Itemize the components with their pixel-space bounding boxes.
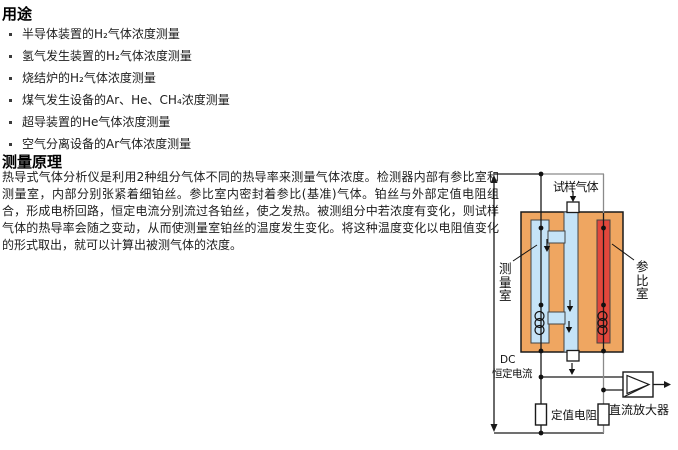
constant-current-label: 恒定电流 (492, 366, 532, 381)
measurement-channel (531, 220, 549, 343)
lower-gas-passage (548, 312, 565, 324)
fixed-resistor-reference (598, 404, 609, 425)
dc-label: DC (500, 354, 515, 366)
schematic-drawing (0, 0, 678, 450)
upper-gas-passage (548, 231, 565, 243)
reference-chamber-label: 参比室 (636, 260, 650, 301)
sample-gas-label: 试样气体 (553, 178, 598, 195)
detector-schematic: 试样气体 测量室 参比室 DC 恒定电流 定值电阻 直流放大器 (0, 0, 678, 450)
dc-amplifier-box (623, 372, 671, 397)
sample-gas-inlet-port (567, 202, 579, 213)
dc-amplifier-label: 直流放大器 (609, 401, 669, 418)
current-arrow-down-icon (491, 424, 498, 432)
current-arrow-up-icon (491, 175, 498, 183)
fixed-resistor-label: 定值电阻 (551, 407, 597, 423)
measurement-chamber-label: 测量室 (499, 262, 513, 303)
sample-gas-outlet-port (567, 351, 579, 362)
fixed-resistor-measurement (536, 404, 547, 425)
output-arrow-icon (664, 381, 671, 388)
sample-inlet-channel (564, 212, 578, 352)
